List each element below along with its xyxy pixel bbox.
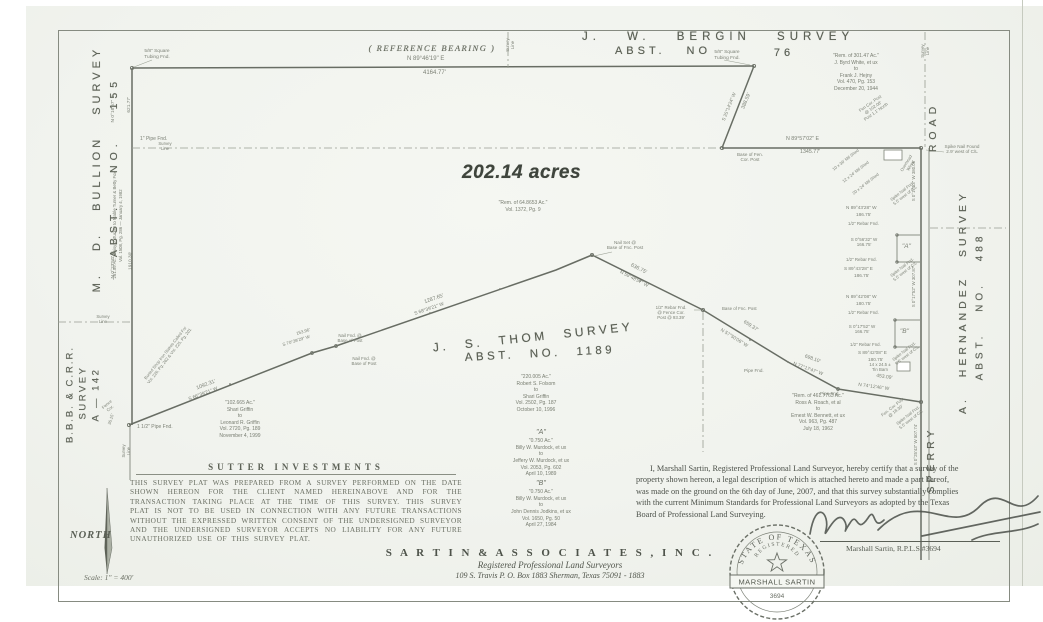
map-label: "A" bbox=[902, 243, 911, 251]
map-label: 1/2" Rebar Fnd. bbox=[848, 221, 879, 226]
map-label: 186.75' bbox=[854, 273, 869, 279]
reference-bearing-distance: 4164.77' bbox=[423, 70, 446, 76]
map-label: SurveyLine bbox=[152, 141, 178, 151]
map-label: N 89°43'28" W bbox=[846, 205, 877, 211]
map-label: SurveyLine bbox=[505, 32, 515, 58]
seal-name: MARSHALL SARTIN bbox=[738, 578, 815, 587]
map-label: Pipe Fnd. bbox=[744, 368, 764, 373]
surveyor-seal: STATE OF TEXAS REGISTERED MARSHALL SARTI… bbox=[727, 522, 827, 622]
map-label: Base of Fen.Cor. Post bbox=[728, 152, 772, 163]
bergin-survey-abst: ABST. NO bbox=[603, 45, 723, 57]
client-name: SUTTER INVESTMENTS bbox=[136, 462, 456, 475]
seal-arc-top: STATE OF TEXAS bbox=[736, 532, 818, 565]
signature-line bbox=[820, 541, 1000, 542]
map-label: 1910.30' bbox=[128, 252, 134, 270]
deed-white: "Rem. of 301.47 Ac."J. Byrd White, et ux… bbox=[808, 53, 904, 93]
map-label: SurveyLine bbox=[920, 38, 930, 64]
seal-number: 3694 bbox=[770, 593, 785, 600]
map-label: 1 1/2" Pipe Fnd. bbox=[137, 425, 173, 431]
bergin-survey-number: 76 bbox=[770, 47, 798, 59]
survey-plat-document: { "surveys": { "bergin": {"name": "J. W.… bbox=[0, 0, 1043, 586]
firm-block: S A R T I N & A S S O C I A T E S , I N … bbox=[380, 547, 720, 580]
reference-bearing-label: ( REFERENCE BEARING ) bbox=[357, 43, 507, 53]
deed-folsom: "220.005 Ac."Robert S. FolsomtoShari Gri… bbox=[500, 374, 572, 414]
hernandez-survey-abst: ABST. NO. 488 bbox=[975, 212, 986, 402]
deed-griffin: "102.665 Ac."Shari GriffintoLeonard R. G… bbox=[200, 400, 280, 440]
map-label: SurveyLine bbox=[122, 438, 132, 464]
map-label: Pipe Fnd. bbox=[820, 391, 840, 396]
leader-line bbox=[594, 252, 612, 256]
map-label: 5/8" SquareTubing Fnd. bbox=[136, 49, 178, 60]
firm-tagline: Registered Professional Land Surveyors bbox=[380, 560, 720, 570]
seal-star-icon bbox=[767, 553, 786, 571]
bergin-survey-name: J. W. BERGIN SURVEY bbox=[582, 31, 842, 43]
map-label: 1/2" Rebar Fnd. bbox=[848, 310, 879, 315]
map-label: Nail Set @Base of Fnc. Post bbox=[598, 240, 652, 251]
bullion-survey-name: M. D. BULLION SURVEY bbox=[91, 34, 103, 304]
bbb-crr-survey-line3: A — 142 bbox=[91, 350, 102, 440]
map-label: 1/2" Rebar Fnd. bbox=[850, 342, 881, 347]
north-boundary-line bbox=[132, 66, 754, 68]
map-label: SurveyLine bbox=[90, 314, 116, 324]
scale-label: Scale: 1" = 400' bbox=[84, 573, 133, 582]
map-label: S 89°42'08" E bbox=[858, 350, 887, 356]
hernandez-survey-name: A. HERNANDEZ SURVEY bbox=[957, 182, 969, 422]
map-label: S 0°17'52" W166.75' bbox=[840, 324, 884, 335]
map-label: 1/2" Rebar Fnd.@ Fence Cor.Post @ 93.39' bbox=[648, 305, 694, 321]
bbb-crr-survey-line1: B.B.B. & C.R.R. bbox=[65, 335, 76, 455]
map-label: Spike Nail Found2.9' west of C/L bbox=[934, 144, 990, 155]
map-label: S 89°43'28" E bbox=[844, 266, 873, 272]
map-label: S 0°56'32" W166.75' bbox=[842, 237, 886, 248]
map-label: Nail Fnd. @Base of Post bbox=[330, 333, 370, 343]
surveyor-disclaimer: THIS SURVEY PLAT WAS PREPARED FROM A SUR… bbox=[130, 478, 462, 544]
shed-symbol bbox=[884, 150, 902, 160]
map-label: 180.75' bbox=[856, 301, 871, 307]
north-label: NORTH bbox=[70, 530, 112, 541]
map-label: Nail Fnd. @Base of Post bbox=[344, 356, 384, 366]
deed-bennett: "Rem. of 461.7763 Ac."Ross A. Roach, et … bbox=[766, 393, 870, 433]
firm-name: S A R T I N & A S S O C I A T E S , I N … bbox=[380, 547, 720, 559]
acreage-label: 202.14 acres bbox=[462, 162, 581, 184]
deed-tract-a: "A""0.750 Ac."Billy W. Murdock, et uxtoJ… bbox=[504, 428, 578, 478]
map-label: 5/8" SquareTubing Fnd. bbox=[706, 50, 748, 61]
client-block: SUTTER INVESTMENTS THIS SURVEY PLAT WAS … bbox=[130, 462, 462, 544]
map-label: S 0°17'52" W 307.87' bbox=[911, 266, 916, 307]
signature-name: Marshall Sartin, R.P.L.S.#3694 bbox=[846, 544, 941, 553]
map-label: Base of Fnc. Post bbox=[722, 306, 757, 311]
deed-tract-b: "B""0.750 Ac."Billy W. Murdock, et uxtoJ… bbox=[504, 479, 578, 529]
map-label: 1/2" Rebar Fnd. bbox=[846, 257, 877, 262]
map-label: S 0°25'43" W 507.74' bbox=[913, 424, 918, 465]
svg-text:STATE OF TEXAS: STATE OF TEXAS bbox=[736, 532, 818, 565]
map-label: N 89°57'02" E bbox=[786, 136, 819, 142]
map-label: N 0°23'50" E bbox=[111, 251, 117, 278]
map-label: N 89°42'08" W bbox=[846, 294, 877, 300]
map-label: 621.77' bbox=[127, 97, 133, 113]
map-label: 186.75' bbox=[856, 212, 871, 218]
leader-line bbox=[134, 60, 152, 67]
deed-remainder: "Rem. of 64.8653 Ac."Vol. 1372, Pg. 9 bbox=[492, 200, 554, 213]
bbb-crr-survey-line2: SURVEY bbox=[78, 348, 89, 438]
firm-address: 109 S. Travis P. O. Box 1883 Sherman, Te… bbox=[380, 571, 720, 580]
map-label: N 0°16'57" E bbox=[111, 95, 117, 122]
map-label: "B" bbox=[900, 328, 909, 336]
reference-bearing-value: N 89°46'19" E bbox=[407, 56, 444, 62]
map-label: 1345.77' bbox=[800, 149, 820, 155]
